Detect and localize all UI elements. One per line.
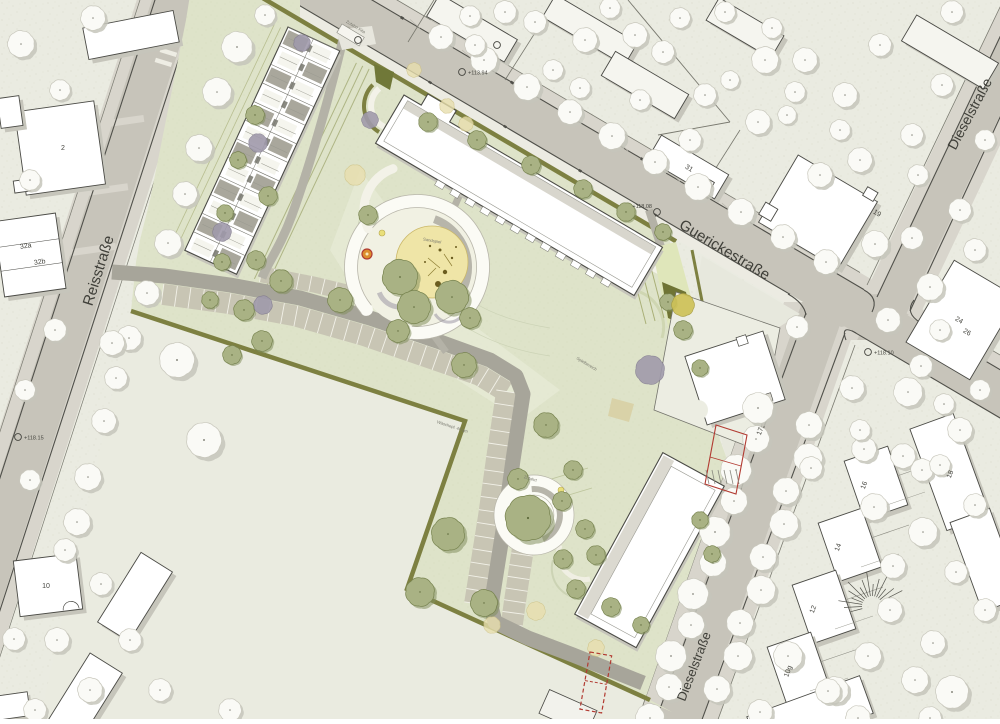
svg-text:+118.08: +118.08 — [632, 204, 652, 210]
svg-text:2: 2 — [61, 145, 65, 152]
svg-text:10: 10 — [42, 583, 50, 590]
svg-text:+118.10: +118.10 — [874, 351, 894, 357]
svg-text:+118.15: +118.15 — [24, 436, 44, 442]
svg-text:+113.94: +113.94 — [468, 71, 488, 77]
